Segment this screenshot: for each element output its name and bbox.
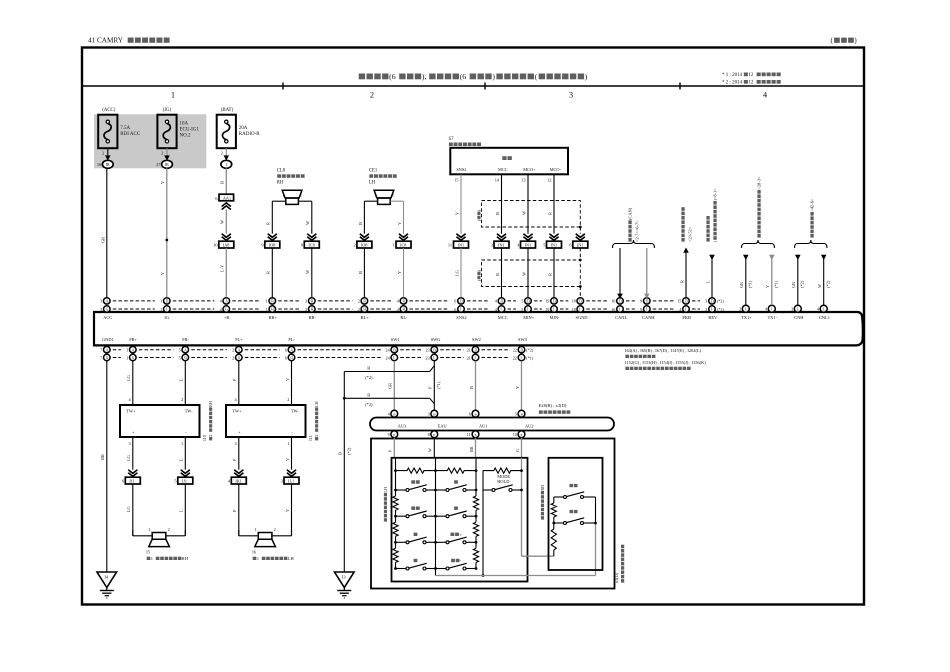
svg-text:11: 11: [448, 243, 452, 248]
svg-text:1: 1: [225, 163, 227, 167]
svg-text:4: 4: [763, 90, 768, 100]
svg-text:): ): [585, 72, 588, 81]
svg-text:IC8: IC8: [400, 242, 406, 247]
svg-text:15: 15: [454, 178, 458, 183]
svg-text:FR+: FR+: [129, 337, 137, 342]
svg-text:LG: LG: [454, 269, 459, 276]
svg-text:1: 1: [374, 193, 376, 198]
svg-text:2: 2: [287, 397, 289, 402]
svg-text:CL8: CL8: [277, 169, 286, 174]
svg-text:IN1: IN1: [498, 242, 505, 247]
svg-text:<23-52>: <23-52>: [688, 226, 693, 242]
svg-text:LG: LG: [126, 374, 131, 381]
svg-text:B: B: [220, 181, 225, 184]
svg-text:HOLD: HOLD: [497, 479, 509, 484]
svg-text:AU2: AU2: [525, 424, 533, 429]
svg-text:L-Y: L-Y: [220, 264, 225, 272]
svg-text:(*2): (*2): [365, 375, 373, 380]
svg-text:3: 3: [305, 299, 307, 304]
svg-text:G: G: [106, 308, 109, 312]
svg-text:LG: LG: [126, 505, 131, 512]
svg-text:A: A: [132, 348, 135, 352]
svg-text:6: 6: [469, 412, 471, 417]
svg-text:BR: BR: [100, 454, 105, 460]
svg-text:B: B: [338, 452, 343, 455]
svg-text:(*2): (*2): [365, 402, 373, 407]
svg-text:B: B: [367, 392, 370, 397]
svg-text:IN1: IN1: [458, 242, 465, 247]
svg-text:B: B: [495, 273, 500, 276]
svg-text:IO8: IO8: [269, 242, 276, 247]
svg-text:21: 21: [467, 355, 471, 360]
svg-text:)<8-1>: )<8-1>: [713, 188, 718, 201]
svg-text:15: 15: [677, 299, 681, 304]
svg-text:23: 23: [426, 355, 430, 360]
svg-text:AU3: AU3: [398, 424, 406, 429]
svg-text:D: D: [475, 348, 478, 352]
svg-text:NO.2: NO.2: [180, 134, 191, 139]
svg-text:MODE: MODE: [497, 474, 510, 479]
svg-text:CANL: CANL: [615, 315, 627, 320]
svg-text:1: 1: [160, 307, 162, 312]
svg-text:(*2): (*2): [526, 348, 534, 353]
svg-text:2: 2: [232, 348, 234, 353]
svg-text:EAU: EAU: [438, 424, 448, 429]
svg-text:MCC: MCC: [498, 315, 508, 320]
svg-text:10A: 10A: [180, 121, 189, 126]
svg-text:IG: IG: [164, 315, 169, 320]
svg-text:+B: +B: [224, 315, 229, 320]
svg-text:L: L: [179, 509, 184, 512]
svg-text:6: 6: [454, 307, 456, 312]
svg-text:* 2 : 2014: * 2 : 2014: [722, 81, 743, 86]
svg-text:2: 2: [314, 435, 319, 437]
svg-text:12: 12: [748, 73, 754, 78]
svg-text:3: 3: [791, 307, 793, 312]
svg-text:RH: RH: [540, 485, 545, 491]
svg-text:(*2): (*2): [717, 299, 725, 304]
svg-text:2: 2: [370, 90, 374, 100]
svg-text:(6: (6: [389, 72, 396, 81]
svg-text:5: 5: [515, 412, 517, 417]
svg-text:3: 3: [100, 299, 102, 304]
svg-text:D: D: [166, 300, 169, 304]
svg-text:REV: REV: [708, 315, 718, 320]
svg-text:(*1): (*1): [717, 307, 725, 312]
svg-text:D: D: [685, 300, 688, 304]
svg-text:L: L: [179, 378, 184, 381]
svg-text:LH: LH: [383, 487, 388, 493]
svg-text:RL-: RL-: [400, 315, 408, 320]
svg-text:D: D: [553, 300, 556, 304]
svg-text:IB: IB: [165, 163, 169, 167]
svg-text:LH: LH: [288, 556, 295, 561]
svg-text:2: 2: [274, 527, 276, 532]
svg-text:RH: RH: [182, 556, 189, 561]
svg-text:13: 13: [521, 178, 525, 183]
svg-text:2: 2: [221, 151, 223, 156]
svg-text:(*1): (*1): [436, 381, 441, 389]
svg-text:TX1-: TX1-: [768, 315, 778, 320]
svg-text:22: 22: [513, 348, 517, 353]
svg-text:IB: IB: [106, 163, 110, 167]
svg-text:CNL1: CNL1: [819, 315, 830, 320]
svg-text:2: 2: [739, 307, 741, 312]
svg-text:B: B: [469, 386, 474, 389]
svg-text:1: 1: [126, 348, 128, 353]
svg-text:1: 1: [181, 441, 183, 446]
svg-text:2: 2: [354, 243, 356, 248]
svg-text:10: 10: [611, 307, 615, 312]
svg-text:D: D: [433, 348, 436, 352]
svg-text:RH: RH: [277, 181, 284, 186]
svg-text:SW2: SW2: [472, 337, 481, 342]
svg-text:H: H: [403, 308, 406, 312]
svg-text:CE1: CE1: [369, 169, 378, 174]
svg-text:(ACC): (ACC): [102, 108, 115, 113]
svg-text:LG: LG: [126, 454, 131, 461]
svg-text:G: G: [291, 356, 294, 360]
svg-text:2: 2: [181, 397, 183, 402]
svg-text:GR: GR: [388, 383, 393, 389]
svg-text:2: 2: [300, 193, 302, 198]
svg-text:IO8: IO8: [361, 242, 368, 247]
svg-text:FR-: FR-: [182, 337, 189, 342]
svg-text:D: D: [711, 300, 714, 304]
svg-text:RDI ACC: RDI ACC: [120, 132, 141, 137]
svg-text:SNS2: SNS2: [456, 315, 466, 320]
svg-text:2: 2: [161, 151, 163, 156]
svg-text:6: 6: [454, 299, 456, 304]
svg-text:AA1: AA1: [223, 196, 231, 201]
svg-text:3: 3: [129, 441, 131, 446]
svg-text:ECU-IG1: ECU-IG1: [180, 128, 200, 133]
svg-text:L: L: [823, 307, 825, 311]
svg-text:(*1): (*1): [526, 355, 534, 360]
svg-text:): ): [492, 72, 495, 81]
svg-text:41 CAMRY: 41 CAMRY: [88, 37, 124, 45]
svg-text:I10: I10: [202, 435, 207, 441]
svg-text:L: L: [797, 307, 799, 311]
svg-text:1: 1: [266, 307, 268, 312]
svg-text:AU1: AU1: [479, 424, 487, 429]
svg-text:H: H: [311, 308, 314, 312]
svg-text:11: 11: [467, 432, 471, 437]
svg-text:FL-: FL-: [288, 337, 295, 342]
svg-text:H: H: [363, 308, 366, 312]
svg-text:3: 3: [235, 441, 237, 446]
svg-text:D: D: [393, 348, 396, 352]
svg-text:R: R: [266, 271, 271, 274]
svg-text:3: 3: [569, 90, 573, 100]
svg-text:21: 21: [467, 348, 471, 353]
svg-text:1: 1: [255, 527, 257, 532]
svg-text:D: D: [521, 348, 524, 352]
svg-text:TW+: TW+: [126, 409, 136, 414]
svg-text:SGND: SGND: [576, 315, 588, 320]
svg-text:+: +: [238, 430, 241, 435]
svg-text:D: D: [579, 300, 582, 304]
svg-text:I11: I11: [308, 435, 313, 440]
svg-text:2: 2: [232, 355, 234, 360]
svg-text:A: A: [106, 300, 109, 304]
svg-text:6: 6: [285, 348, 287, 353]
svg-text:FL+: FL+: [235, 337, 243, 342]
svg-text:SNS2: SNS2: [456, 167, 466, 172]
svg-text:D: D: [646, 300, 649, 304]
svg-text:7.5A: 7.5A: [120, 126, 130, 131]
svg-text:6: 6: [285, 355, 287, 360]
svg-text:(*2): (*2): [800, 280, 805, 288]
svg-text:L: L: [705, 280, 710, 283]
svg-text:SWG: SWG: [431, 337, 442, 342]
svg-text:(BAT): (BAT): [221, 108, 234, 113]
svg-text:B: B: [358, 222, 363, 225]
svg-text:A: A: [184, 348, 187, 352]
svg-text:2: 2: [102, 151, 104, 156]
svg-text:CNH: CNH: [794, 315, 804, 320]
svg-text:PKB: PKB: [682, 315, 691, 320]
svg-text:GND1: GND1: [102, 337, 114, 342]
svg-text:TW+: TW+: [232, 409, 242, 414]
svg-text:RH: RH: [208, 401, 213, 407]
svg-text:RADIO-R: RADIO-R: [239, 132, 260, 137]
svg-text:5: 5: [521, 299, 523, 304]
svg-text:20A: 20A: [239, 126, 248, 131]
svg-text:MIN+: MIN+: [523, 315, 535, 320]
svg-text:IN1: IN1: [525, 242, 532, 247]
svg-text:3: 3: [705, 299, 707, 304]
svg-text:(6: (6: [460, 72, 467, 81]
svg-text:MIN-: MIN-: [550, 315, 561, 320]
svg-text:A: A: [225, 300, 228, 304]
svg-text:MCO+: MCO+: [523, 167, 536, 172]
svg-text:<2-7><6-7>: <2-7><6-7>: [635, 220, 640, 242]
svg-text:8: 8: [428, 432, 430, 437]
svg-text:1: 1: [282, 193, 284, 198]
svg-text:R: R: [547, 212, 552, 215]
svg-text:D: D: [460, 300, 463, 304]
svg-text:(: (: [535, 72, 538, 81]
svg-text:D: D: [527, 300, 530, 304]
svg-text:E: E: [475, 433, 477, 437]
svg-text:B: B: [367, 366, 370, 371]
svg-text:9: 9: [640, 299, 642, 304]
svg-text:A: A: [291, 348, 294, 352]
svg-text:5: 5: [521, 307, 523, 312]
svg-text:* 1 : 2014: * 1 : 2014: [722, 73, 743, 78]
svg-text:BR: BR: [469, 446, 474, 452]
svg-text:1: 1: [257, 556, 259, 561]
svg-text:7: 7: [100, 348, 102, 353]
svg-text:1: 1: [393, 243, 395, 248]
svg-text:2: 2: [358, 299, 360, 304]
svg-text:(*1): (*1): [748, 280, 753, 288]
svg-text:G: G: [106, 356, 109, 360]
svg-text:SW3: SW3: [518, 337, 528, 342]
svg-text:18: 18: [572, 299, 576, 304]
svg-text:(*2): (*2): [826, 280, 831, 288]
svg-text:1: 1: [171, 90, 175, 100]
svg-text:IC8: IC8: [308, 242, 314, 247]
svg-text:IL1: IL1: [288, 478, 294, 483]
svg-text:ACC: ACC: [103, 315, 112, 320]
svg-text:2: 2: [392, 193, 394, 198]
svg-text:5: 5: [179, 355, 181, 360]
svg-text:G: G: [184, 356, 187, 360]
svg-text:+: +: [459, 532, 462, 537]
svg-text:L: L: [179, 458, 184, 461]
svg-text:A: A: [238, 348, 241, 352]
svg-text:23: 23: [426, 348, 430, 353]
svg-text:LH: LH: [369, 181, 376, 186]
svg-text:3: 3: [100, 307, 102, 312]
svg-text:RR+: RR+: [269, 315, 278, 320]
svg-text:A: A: [106, 348, 109, 352]
svg-text:1: 1: [160, 299, 162, 304]
svg-text:12: 12: [748, 81, 754, 86]
svg-text:G: G: [515, 449, 520, 452]
svg-text:IA8: IA8: [223, 242, 230, 247]
svg-text:IK1: IK1: [235, 478, 242, 483]
svg-text:IJ1: IJ1: [182, 478, 187, 483]
svg-text:S7: S7: [449, 137, 455, 142]
svg-text:MCC: MCC: [498, 167, 508, 172]
svg-text:x3(D): x3(D): [614, 572, 619, 583]
svg-text:9: 9: [640, 307, 642, 312]
svg-text:2: 2: [358, 307, 360, 312]
svg-text:RL+: RL+: [361, 315, 370, 320]
svg-text:RR-: RR-: [309, 315, 317, 320]
svg-text:),: ),: [422, 72, 427, 81]
svg-text:5: 5: [179, 348, 181, 353]
svg-text:(*1): (*1): [774, 280, 779, 288]
svg-text:3: 3: [305, 307, 307, 312]
svg-text:19: 19: [545, 299, 549, 304]
svg-text:1: 1: [287, 441, 289, 446]
svg-text:G: G: [238, 356, 241, 360]
svg-text:10: 10: [611, 299, 615, 304]
svg-text:3: 3: [428, 412, 430, 417]
svg-text:TW-: TW-: [291, 409, 299, 414]
svg-text:9: 9: [388, 432, 390, 437]
svg-text:1: 1: [151, 556, 153, 561]
svg-text:B: B: [495, 212, 500, 215]
svg-text:R: R: [679, 280, 684, 283]
svg-text:IN1: IN1: [551, 242, 558, 247]
svg-text:D: D: [501, 300, 504, 304]
svg-text:<42-6>: <42-6>: [810, 198, 815, 212]
svg-text:IJ1: IJ1: [129, 478, 134, 483]
svg-text:GR: GR: [100, 237, 105, 243]
svg-text:(CAN): (CAN): [628, 207, 633, 220]
svg-text:10: 10: [513, 432, 517, 437]
svg-text:GR: GR: [739, 282, 744, 288]
svg-text:(IG): (IG): [163, 108, 172, 113]
svg-text:1: 1: [149, 527, 151, 532]
svg-text:2: 2: [208, 435, 213, 437]
svg-text:E: E: [393, 433, 395, 437]
svg-text:CANH: CANH: [642, 315, 655, 320]
svg-text:R: R: [266, 222, 271, 225]
svg-text:LH: LH: [314, 401, 319, 407]
svg-text:D: D: [619, 300, 622, 304]
svg-text:22: 22: [513, 355, 517, 360]
svg-text:SW1: SW1: [391, 337, 400, 342]
svg-text:7: 7: [100, 355, 102, 360]
svg-text:GR: GR: [791, 282, 796, 288]
svg-text:W: W: [428, 448, 433, 452]
svg-text:R: R: [547, 273, 552, 276]
svg-text:G: G: [225, 308, 228, 312]
svg-text:TW-: TW-: [185, 409, 193, 414]
svg-text:E: E: [433, 433, 435, 437]
svg-text:B: B: [358, 271, 363, 274]
svg-text:1: 1: [126, 355, 128, 360]
svg-text:18: 18: [572, 307, 576, 312]
svg-text:3: 3: [705, 307, 707, 312]
svg-text:1: 1: [266, 299, 268, 304]
svg-text:E: E: [521, 433, 523, 437]
svg-text:12: 12: [547, 178, 551, 183]
svg-text:+: +: [132, 430, 135, 435]
svg-text:G: G: [132, 356, 135, 360]
svg-text:2: 2: [168, 527, 170, 532]
svg-text:IN1: IN1: [577, 242, 584, 247]
svg-text:MCO-: MCO-: [550, 167, 562, 172]
svg-text:(*2): (*2): [347, 447, 352, 455]
svg-text:19: 19: [545, 307, 549, 312]
svg-text:TX1+: TX1+: [741, 315, 752, 320]
svg-text:H: H: [271, 308, 274, 312]
svg-text:<28-3>: <28-3>: [757, 176, 762, 190]
